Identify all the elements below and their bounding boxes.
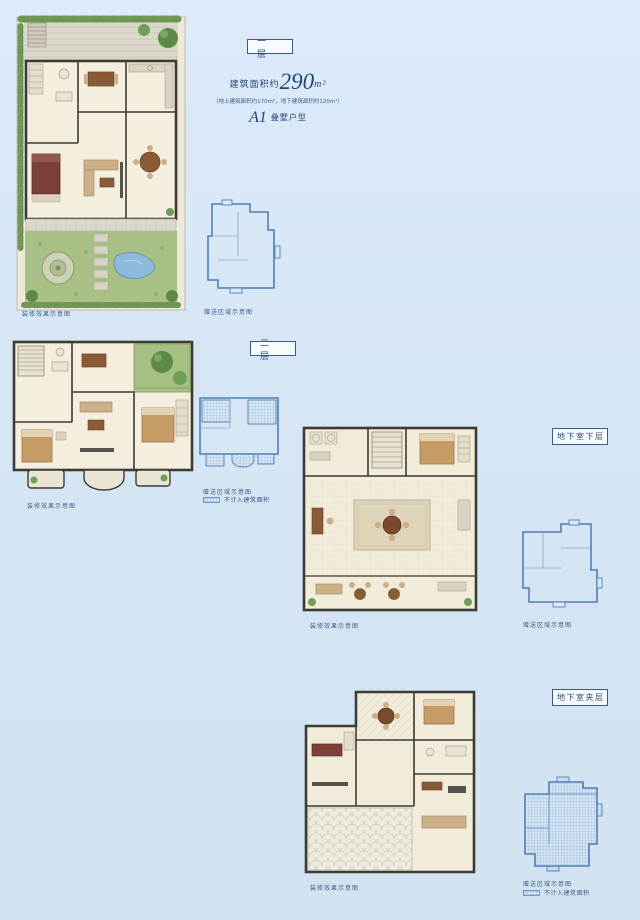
basement-lower-label: 地下室下层	[556, 431, 605, 442]
area-line: 建筑面积约290m²	[168, 72, 388, 95]
basement-mezzanine-render-caption: 装修效果示意图	[310, 883, 359, 892]
basement-mezzanine-legend: 不计入建筑面积	[523, 888, 590, 897]
area-summary: 建筑面积约290m² （地上建筑面积约170m²，地下建筑面积约120m²） A…	[168, 72, 388, 127]
hatch-swatch-icon	[523, 890, 540, 896]
floor1-gift-area-blueprint	[198, 196, 288, 302]
floor1-gift-caption: 赠送区域示意图	[204, 307, 253, 316]
model-code: A1	[249, 109, 267, 126]
model-line: A1叠墅户型	[168, 109, 388, 127]
basement-mezzanine-plan-rendering	[298, 686, 483, 879]
basement-mezzanine-gift-caption: 赠送区域示意图	[523, 879, 572, 888]
floor2-label-tag: 二层	[250, 341, 296, 356]
floorplan-marketing-sheet: 装修效果示意图 一层 建筑面积约290m² （地上建筑面积约170m²，地下建筑…	[0, 0, 640, 920]
area-detail: （地上建筑面积约170m²，地下建筑面积约120m²）	[177, 96, 379, 104]
basement-mezzanine-gift-area-blueprint	[513, 774, 603, 872]
basement-lower-gift-area-blueprint	[513, 518, 603, 608]
basement-lower-gift-caption: 赠送区域示意图	[523, 620, 572, 629]
floor1-label-tag: 一层	[247, 39, 293, 54]
floor1-render-caption: 装修效果示意图	[22, 309, 71, 318]
floor2-legend: 不计入建筑面积	[203, 495, 270, 504]
basement-mezzanine-label: 地下室夹层	[556, 692, 605, 703]
floor2-gift-area-blueprint	[192, 388, 286, 483]
basement-mezzanine-label-tag: 地下室夹层	[552, 689, 608, 706]
basement-lower-render-caption: 装修效果示意图	[310, 621, 359, 630]
floor2-plan-rendering	[10, 336, 195, 501]
basement-lower-label-tag: 地下室下层	[552, 428, 608, 445]
basement-mezzanine-legend-label: 不计入建筑面积	[544, 888, 590, 897]
floor2-label: 二层	[251, 336, 295, 362]
area-unit: m²	[314, 79, 326, 90]
floor2-render-caption: 装修效果示意图	[27, 501, 76, 510]
basement-lower-plan-rendering	[298, 424, 483, 616]
floor2-balcony-center	[84, 470, 124, 490]
floor1-deck-area	[24, 21, 178, 61]
hatch-swatch-icon	[203, 497, 220, 503]
model-type: 叠墅户型	[271, 113, 307, 122]
floor1-plan-rendering	[16, 12, 186, 312]
area-value: 290	[280, 69, 315, 94]
floor1-label: 一层	[248, 34, 292, 60]
floor2-legend-label: 不计入建筑面积	[224, 495, 270, 504]
